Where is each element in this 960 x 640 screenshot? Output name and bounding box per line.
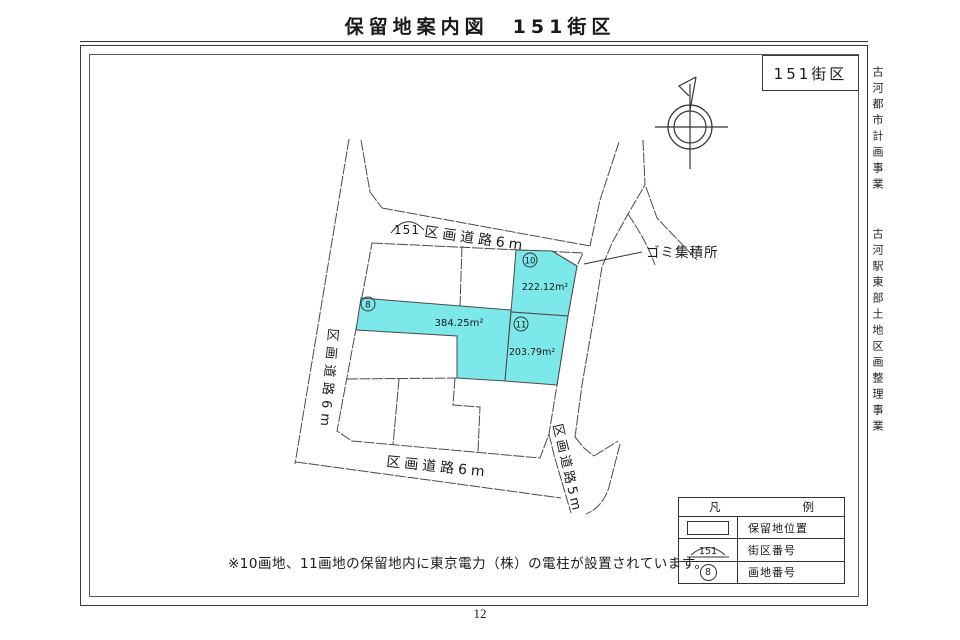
parcel-8-area: 384.25m²	[435, 318, 484, 329]
footnote: ※10画地、11画地の保留地内に東京電力（株）の電柱が設置されています。	[228, 552, 708, 572]
se-branch-north-edge	[594, 441, 618, 456]
page-number: 12	[0, 606, 960, 622]
parcel-11-area: 203.79m²	[509, 347, 555, 358]
parcel-11-number: 11	[516, 321, 527, 331]
garbage-station-label: ゴミ集積所	[646, 244, 719, 261]
parcel-10-area: 222.12m²	[522, 282, 568, 293]
left-road-label: 区画道路6m	[316, 328, 341, 432]
garbage-leader-line	[584, 252, 642, 264]
right-road-west-edge-north	[590, 142, 619, 246]
legend-lot-number-label: 画地番号	[738, 562, 844, 583]
nw-corner-chamfer	[370, 192, 382, 208]
se-branch-east-edge	[586, 444, 620, 514]
legend-block-number-label: 街区番号	[738, 539, 844, 560]
block-number-on-map: 151	[394, 223, 420, 237]
left-road-east-edge	[361, 140, 370, 192]
north-symbol	[655, 77, 728, 169]
legend-header: 凡 例	[679, 498, 844, 517]
legend-header-left: 凡	[709, 499, 721, 515]
right-road-east-edge-south	[575, 437, 594, 456]
right-road-label: 区画道路5m	[549, 422, 585, 514]
legend-header-right: 例	[803, 499, 815, 515]
reserved-land-swatch	[687, 521, 729, 535]
legend-reserved-symbol-cell	[679, 517, 738, 538]
legend-reserved-label: 保留地位置	[738, 517, 844, 538]
parcel-10-number: 10	[525, 257, 536, 267]
right-road-east-edge	[575, 140, 645, 437]
parcel-8-number: 8	[365, 301, 371, 311]
legend-row-reserved: 保留地位置	[679, 517, 844, 539]
